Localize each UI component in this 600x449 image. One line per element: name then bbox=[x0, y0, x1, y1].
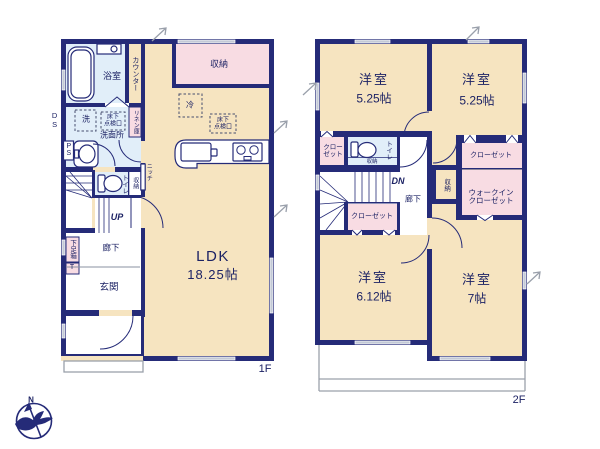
niche-label: ニッチ bbox=[145, 163, 152, 181]
washroom-label: 洗面所 bbox=[100, 132, 124, 141]
counter-label: カウンター bbox=[131, 57, 139, 92]
storage-1f-label: 収納 bbox=[210, 60, 228, 70]
bath-label: 浴室 bbox=[103, 72, 121, 82]
floor-plan-drawing bbox=[0, 0, 600, 449]
toilet-1f-label: トイレ bbox=[120, 174, 127, 194]
room-sw-size: 6.12帖 bbox=[356, 290, 391, 303]
toilet-icon-1f bbox=[98, 175, 122, 192]
closet-east-label: クローゼット bbox=[470, 152, 512, 160]
underfloor-kitchen-label: 床下 点検口 bbox=[214, 117, 232, 130]
toilet-storage-1f-label: 収納 bbox=[131, 177, 138, 189]
room-ne-name: 洋室 bbox=[462, 73, 492, 87]
compass-north-label: N bbox=[28, 397, 34, 406]
washbasin-icon bbox=[74, 141, 98, 167]
toilet-2f-label: トイレ bbox=[384, 140, 391, 160]
floor1-label: 1F bbox=[259, 363, 272, 375]
washer-label: 洗 bbox=[82, 116, 90, 125]
walk-in-closet-label: ウォークイン クローゼット bbox=[469, 189, 514, 206]
underfloor-wash-label: 床下 点検口 bbox=[104, 114, 122, 127]
room-sw-name: 洋室 bbox=[358, 271, 388, 285]
room-nw-size: 5.25帖 bbox=[356, 92, 391, 105]
porch-outline bbox=[64, 361, 143, 372]
hallway-2f-label: 廊下 bbox=[405, 196, 421, 205]
closet-under-stairs-label: クローゼット bbox=[351, 213, 393, 221]
shoe-box-t-label: T bbox=[70, 264, 74, 272]
toilet-storage-2f-label: 収納 bbox=[366, 159, 377, 165]
closet-west-label: クロー ゼット bbox=[323, 144, 343, 158]
room-se-name: 洋室 bbox=[462, 273, 492, 287]
floor2-label: 2F bbox=[513, 394, 526, 406]
linen-label: リネン庫 bbox=[132, 110, 139, 134]
stairs-down-label: DN bbox=[392, 177, 405, 187]
room-se-size: 7帖 bbox=[468, 292, 487, 305]
compass-icon bbox=[15, 402, 53, 439]
entrance-label: 玄関 bbox=[99, 283, 118, 293]
stairs-up-label: UP bbox=[111, 213, 124, 223]
floor1-plan bbox=[61, 39, 274, 372]
hallway-1f-label: 廊下 bbox=[102, 243, 119, 252]
fridge-label: 冷 bbox=[186, 102, 194, 111]
pipe-space-label: PS bbox=[65, 143, 73, 157]
shoe-box-label: 下足箱 bbox=[68, 239, 75, 259]
ldk-name-label: LDK bbox=[196, 249, 230, 266]
room-ne-size: 5.25帖 bbox=[459, 94, 494, 107]
kitchen-counter-icon bbox=[175, 140, 269, 168]
duct-space-label: DS bbox=[50, 111, 58, 129]
storage-mid-label: 収納 bbox=[442, 179, 449, 192]
floor2-plan bbox=[315, 39, 527, 391]
ldk-size-label: 18.25帖 bbox=[187, 268, 239, 282]
floor-plan: 浴室 カウンター 収納 冷 床下 点検口 洗 床下 点検口 洗面所 リネン庫 D… bbox=[0, 0, 600, 449]
room-nw-name: 洋室 bbox=[359, 73, 389, 87]
